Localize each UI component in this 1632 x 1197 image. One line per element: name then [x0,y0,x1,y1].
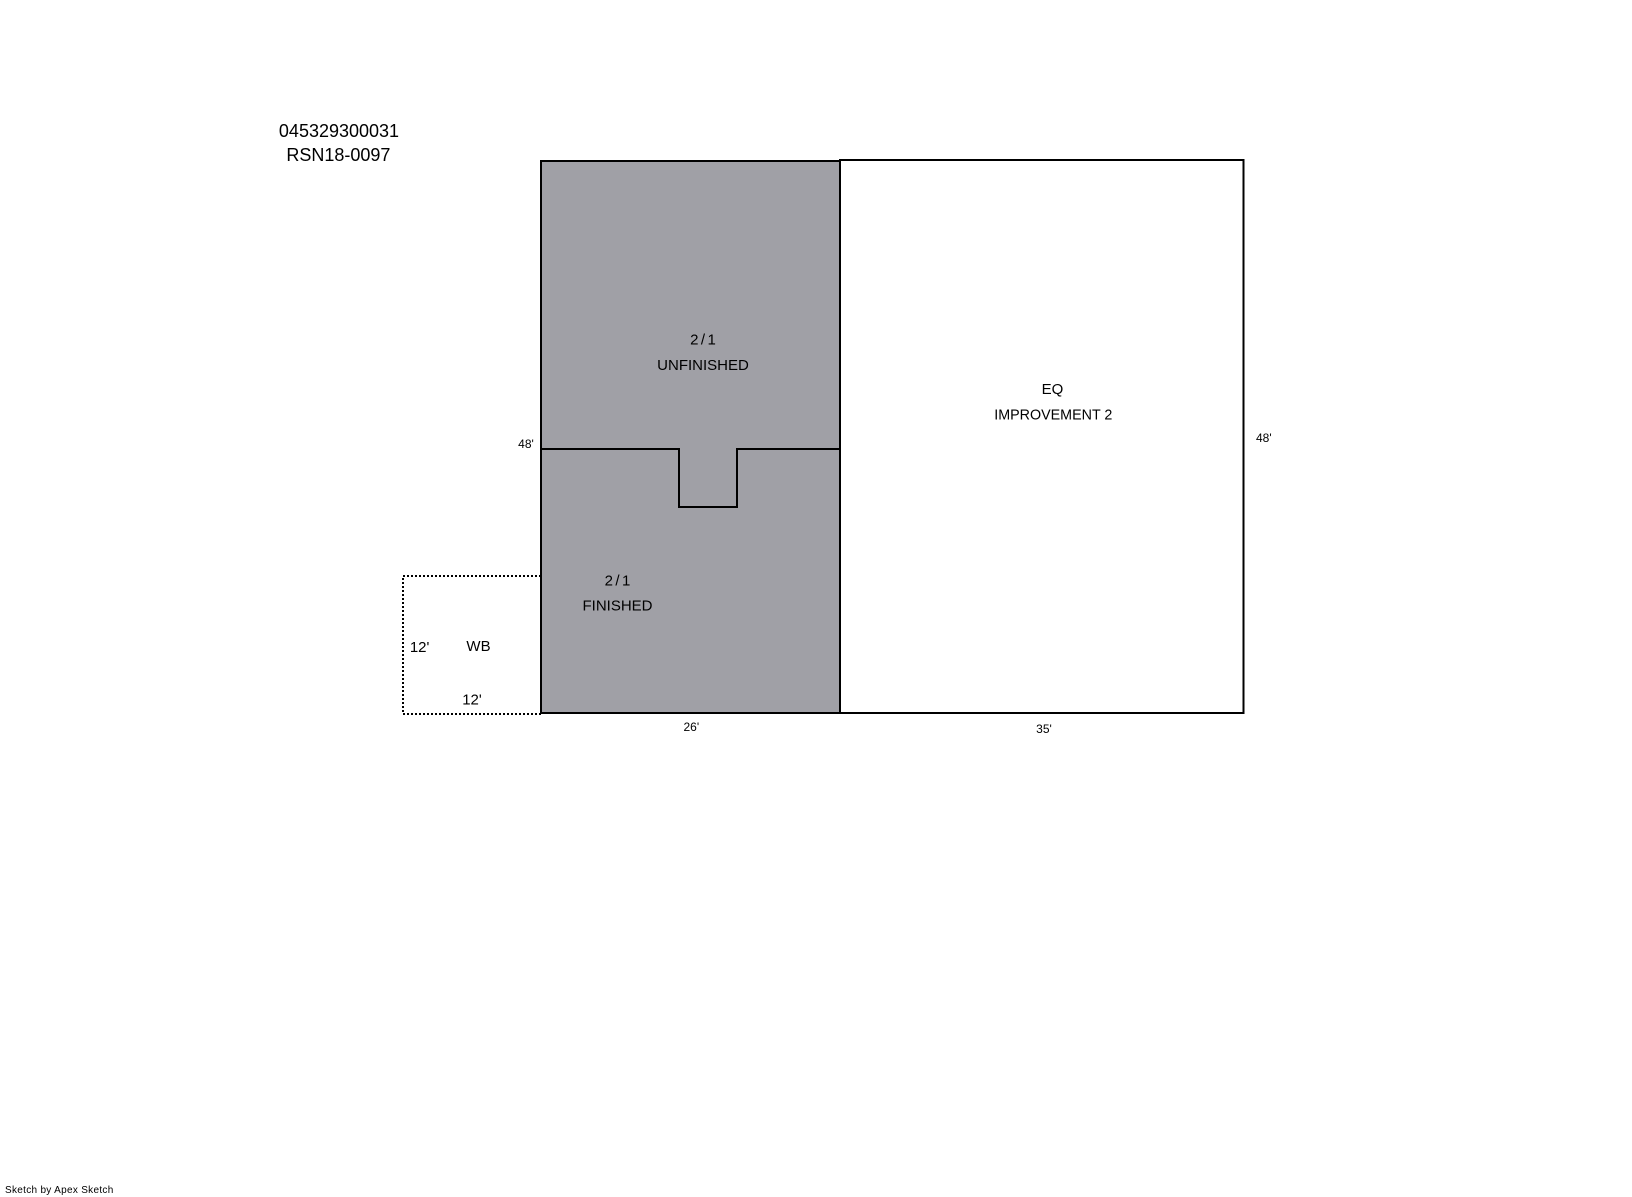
svg-text:12': 12' [462,691,482,708]
svg-text:2/1: 2/1 [690,332,718,349]
svg-text:FINISHED: FINISHED [582,598,652,615]
svg-text:RSN18-0097: RSN18-0097 [286,145,390,165]
svg-text:UNFINISHED: UNFINISHED [657,357,749,374]
svg-text:26': 26' [683,720,699,734]
svg-text:045329300031: 045329300031 [279,121,399,141]
svg-text:2/1: 2/1 [605,573,633,590]
svg-text:48': 48' [1256,431,1272,445]
svg-text:48': 48' [518,437,534,451]
svg-text:Sketch by Apex Sketch: Sketch by Apex Sketch [5,1185,114,1196]
svg-text:12': 12' [410,639,430,656]
svg-text:IMPROVEMENT 2: IMPROVEMENT 2 [994,407,1112,423]
svg-text:WB: WB [466,638,490,655]
svg-text:35': 35' [1036,722,1052,736]
svg-text:EQ: EQ [1042,381,1064,398]
